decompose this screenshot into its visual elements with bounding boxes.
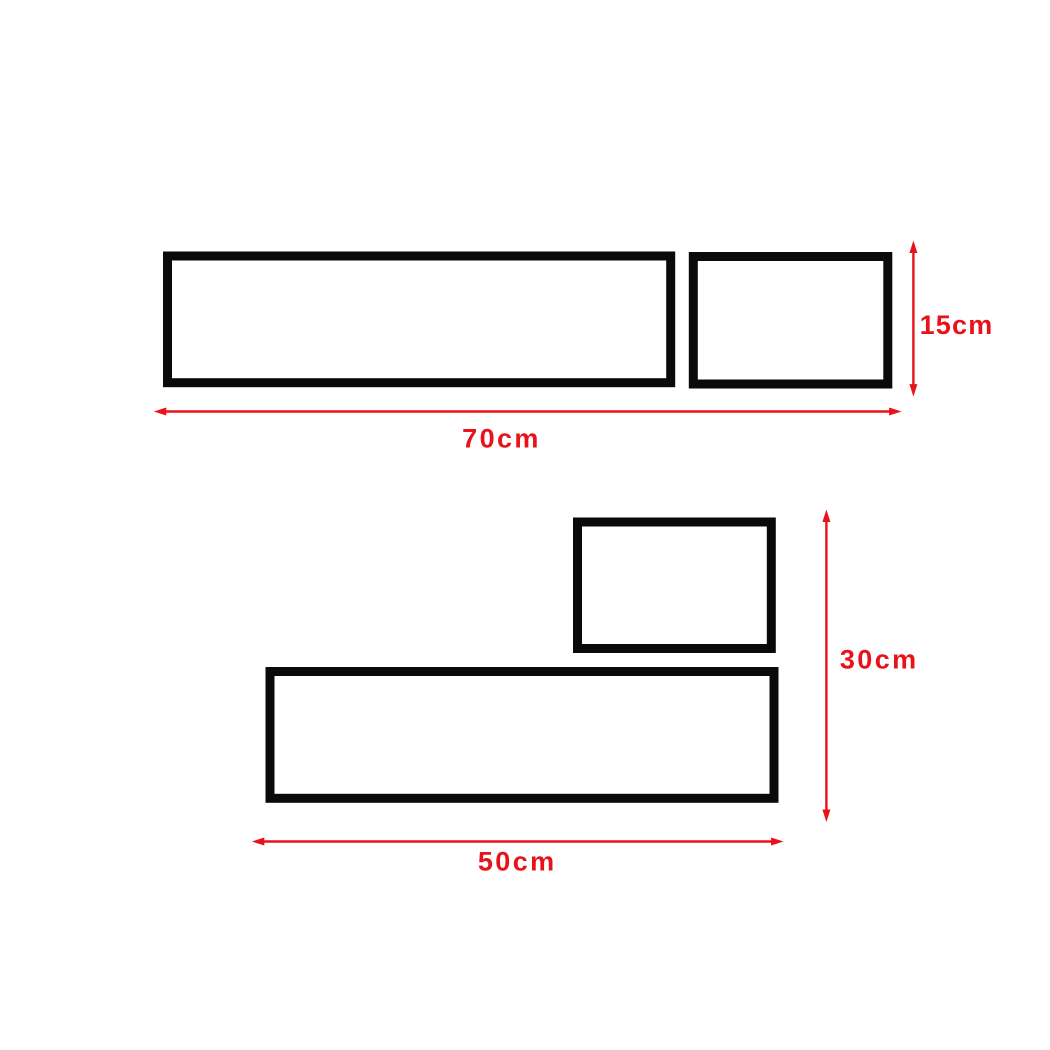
svg-text:50cm: 50cm [478, 847, 557, 877]
svg-text:15cm: 15cm [920, 310, 994, 340]
svg-text:70cm: 70cm [462, 423, 541, 453]
svg-text:30cm: 30cm [840, 645, 919, 675]
